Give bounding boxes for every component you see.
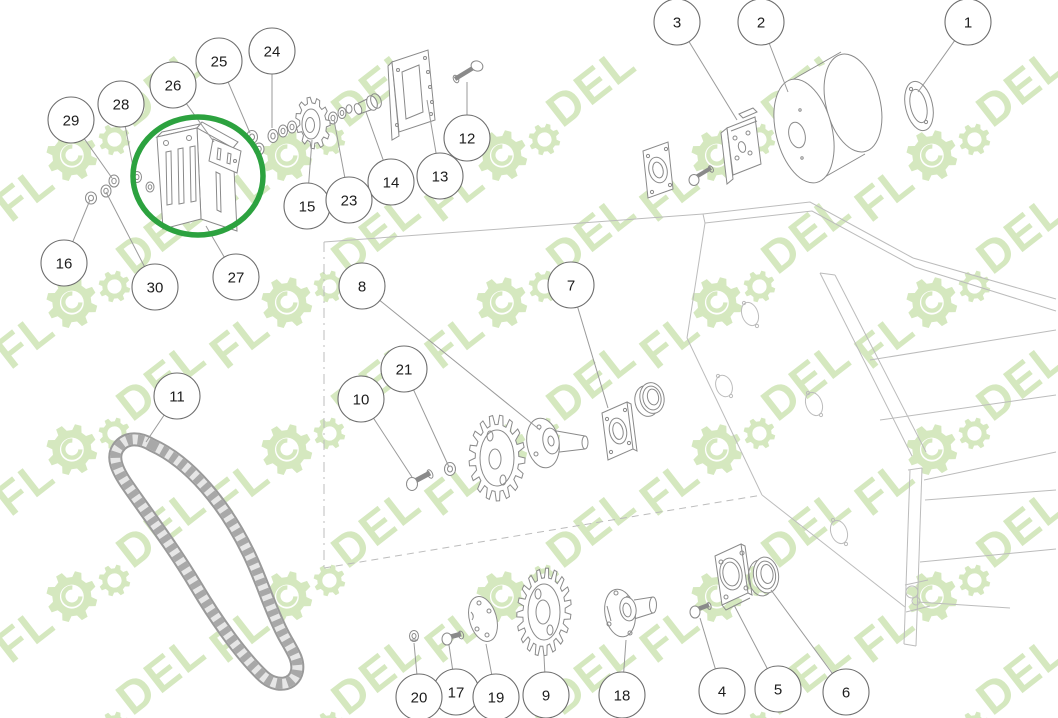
leader-line-20 bbox=[414, 643, 417, 674]
svg-text:13: 13 bbox=[432, 169, 449, 186]
callout-28[interactable]: 28 bbox=[98, 81, 144, 127]
svg-text:26: 26 bbox=[165, 78, 182, 95]
callout-2[interactable]: 2 bbox=[738, 0, 784, 45]
callout-4[interactable]: 4 bbox=[699, 668, 745, 714]
leader-line-10 bbox=[374, 418, 412, 477]
svg-text:12: 12 bbox=[459, 131, 476, 148]
callout-1[interactable]: 1 bbox=[945, 0, 991, 45]
callout-5[interactable]: 5 bbox=[755, 666, 801, 712]
callout-10[interactable]: 10 bbox=[338, 376, 384, 422]
leader-line-16 bbox=[73, 200, 90, 242]
callout-11[interactable]: 11 bbox=[154, 373, 200, 419]
callout-24[interactable]: 24 bbox=[249, 28, 295, 74]
svg-text:3: 3 bbox=[673, 15, 681, 32]
callout-9[interactable]: 9 bbox=[523, 672, 569, 718]
leader-line-11 bbox=[146, 415, 164, 442]
callout-6[interactable]: 6 bbox=[823, 669, 869, 715]
leader-line-29 bbox=[84, 139, 112, 178]
callout-8[interactable]: 8 bbox=[339, 263, 385, 309]
leader-line-4 bbox=[700, 618, 715, 669]
leader-line-1 bbox=[918, 41, 955, 92]
callout-20[interactable]: 20 bbox=[396, 674, 442, 718]
callout-14[interactable]: 14 bbox=[368, 159, 414, 205]
exploded-diagram-page: FLDELFLDELFLDELFLDELFLDELFLDELFLDELFLDEL… bbox=[0, 0, 1058, 718]
svg-text:14: 14 bbox=[383, 175, 400, 192]
svg-text:20: 20 bbox=[411, 690, 428, 707]
callout-16[interactable]: 16 bbox=[41, 240, 87, 286]
svg-text:11: 11 bbox=[169, 389, 185, 406]
leader-line-7 bbox=[578, 307, 608, 408]
callout-3[interactable]: 3 bbox=[654, 0, 700, 45]
callout-7[interactable]: 7 bbox=[548, 262, 594, 308]
svg-text:18: 18 bbox=[614, 688, 631, 705]
callout-12[interactable]: 12 bbox=[444, 115, 490, 161]
svg-text:28: 28 bbox=[113, 97, 130, 114]
svg-text:1: 1 bbox=[964, 15, 972, 32]
svg-text:15: 15 bbox=[299, 199, 316, 216]
svg-text:24: 24 bbox=[264, 44, 281, 61]
leader-line-14 bbox=[366, 112, 383, 160]
leader-line-26 bbox=[186, 104, 214, 142]
leader-line-5 bbox=[734, 605, 767, 669]
callout-21[interactable]: 21 bbox=[381, 346, 427, 392]
callout-27[interactable]: 27 bbox=[213, 254, 259, 300]
svg-text:25: 25 bbox=[211, 54, 228, 71]
leader-line-13 bbox=[427, 100, 436, 153]
callout-18[interactable]: 18 bbox=[599, 672, 645, 718]
svg-text:10: 10 bbox=[353, 392, 370, 409]
callout-19[interactable]: 19 bbox=[473, 674, 519, 718]
leader-line-6 bbox=[771, 590, 832, 674]
svg-text:23: 23 bbox=[341, 193, 358, 210]
callout-13[interactable]: 13 bbox=[417, 153, 463, 199]
leader-line-21 bbox=[414, 390, 449, 467]
svg-text:29: 29 bbox=[63, 113, 80, 130]
callout-30[interactable]: 30 bbox=[132, 264, 178, 310]
leader-line-3 bbox=[689, 42, 737, 120]
highlight-circle bbox=[133, 117, 263, 235]
callout-26[interactable]: 26 bbox=[150, 62, 196, 108]
svg-text:21: 21 bbox=[396, 362, 413, 379]
callout-23[interactable]: 23 bbox=[326, 177, 372, 223]
leader-line-15 bbox=[309, 140, 312, 183]
svg-text:16: 16 bbox=[56, 256, 73, 273]
svg-text:19: 19 bbox=[488, 690, 505, 707]
svg-text:17: 17 bbox=[448, 685, 465, 702]
leader-line-23 bbox=[334, 120, 345, 177]
leader-line-17 bbox=[449, 645, 453, 669]
leader-lines bbox=[73, 41, 955, 675]
svg-text:6: 6 bbox=[842, 685, 850, 702]
leader-line-2 bbox=[769, 44, 788, 93]
svg-text:4: 4 bbox=[718, 684, 726, 701]
svg-text:27: 27 bbox=[228, 270, 245, 287]
callout-29[interactable]: 29 bbox=[48, 97, 94, 143]
svg-text:5: 5 bbox=[774, 682, 782, 699]
svg-text:2: 2 bbox=[757, 15, 765, 32]
leader-line-19 bbox=[486, 644, 492, 674]
callout-25[interactable]: 25 bbox=[196, 38, 242, 84]
svg-text:8: 8 bbox=[358, 279, 366, 296]
leader-line-18 bbox=[624, 640, 626, 672]
svg-text:7: 7 bbox=[567, 278, 575, 295]
svg-text:30: 30 bbox=[147, 280, 164, 297]
svg-text:9: 9 bbox=[542, 688, 550, 705]
callout-overlay: 1234567891011121314151617181920212324252… bbox=[0, 0, 1058, 718]
leader-line-9 bbox=[544, 656, 545, 672]
callout-15[interactable]: 15 bbox=[284, 183, 330, 229]
